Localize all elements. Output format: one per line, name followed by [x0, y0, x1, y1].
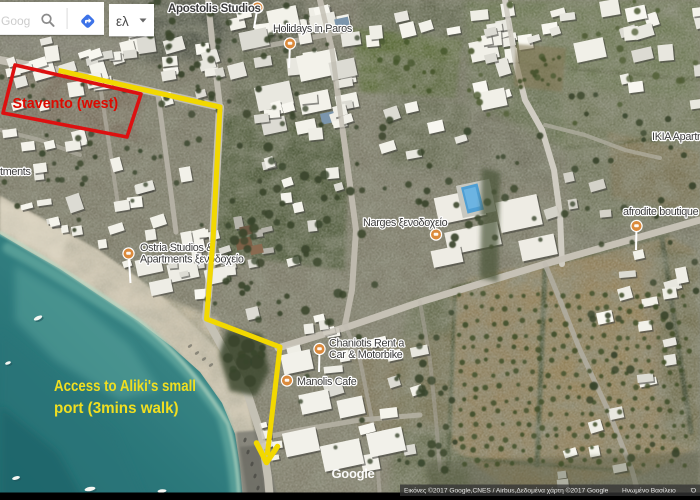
svg-text:Holidays in Paros: Holidays in Paros — [273, 23, 353, 35]
svg-text:Stavento (west): Stavento (west) — [13, 96, 119, 112]
svg-text:port (3mins walk): port (3mins walk) — [54, 400, 179, 417]
svg-text:Ηνωμένο Βασίλειο: Ηνωμένο Βασίλειο — [622, 486, 676, 494]
svg-text:Goog: Goog — [1, 14, 30, 28]
svg-text:afrodite boutique: afrodite boutique — [623, 206, 699, 218]
svg-text:Access to Aliki's small: Access to Aliki's small — [54, 378, 196, 395]
svg-text:Car & Motorbike: Car & Motorbike — [329, 349, 403, 361]
svg-text:Google: Google — [332, 466, 375, 481]
svg-text:Apartments ξενοδοχείο: Apartments ξενοδοχείο — [140, 254, 244, 266]
svg-text:Narges ξενοδοχείο: Narges ξενοδοχείο — [363, 217, 448, 229]
svg-text:tments: tments — [0, 166, 32, 178]
svg-text:Manolis Cafe: Manolis Cafe — [297, 376, 357, 388]
svg-text:Chaniotis Rent a: Chaniotis Rent a — [329, 338, 404, 350]
svg-text:Apostolis Studios: Apostolis Studios — [168, 3, 261, 15]
svg-text:Ό: Ό — [690, 487, 696, 494]
svg-text:ελ: ελ — [116, 14, 129, 29]
svg-text:Εικόνες ©2017 Google,CNES / Ai: Εικόνες ©2017 Google,CNES / Airbus,Δεδομ… — [404, 486, 609, 494]
svg-text:Ostria Studios &: Ostria Studios & — [140, 242, 214, 254]
svg-text:IKIA Apartm: IKIA Apartm — [652, 131, 700, 143]
